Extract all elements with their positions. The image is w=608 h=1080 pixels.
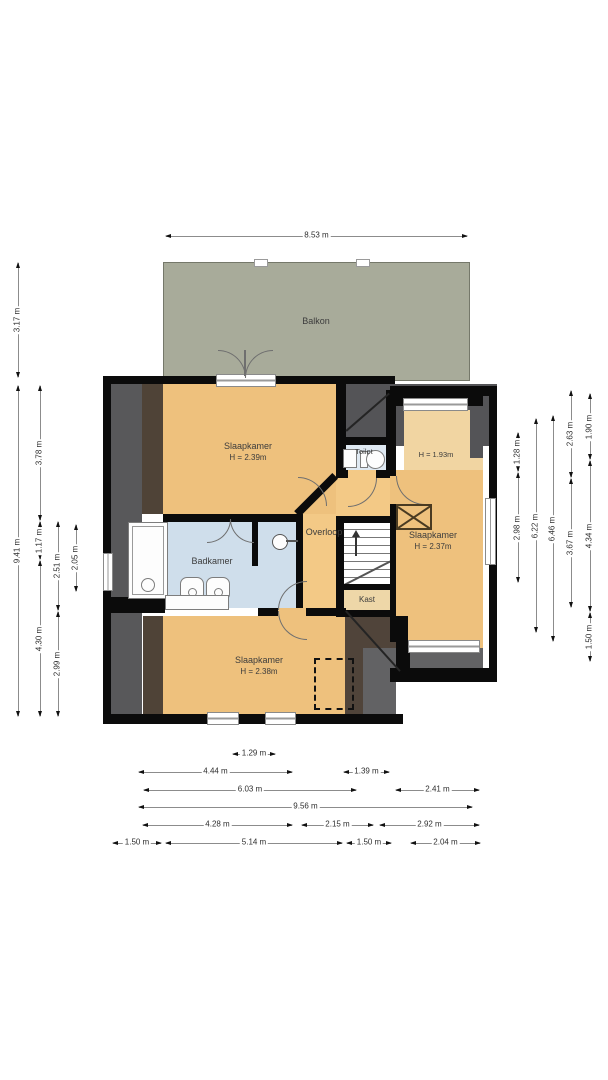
dimension-label: 3.67 m [567,529,576,557]
dimension: 6.22 m [531,418,541,633]
dimension: 2.92 m [379,820,480,830]
dimension: 2.98 m [513,472,523,583]
room-name: Overloop [284,527,364,539]
dimension-label: 4.28 m [203,821,231,830]
room-height: H = 2.38m [199,667,319,677]
dimension-label: 2.63 m [567,420,576,448]
floor-plan-page: Balkon Slaapkamer H = 2.39m Toilet H = 1… [0,0,608,1080]
dimension-label: 3.78 m [36,439,45,467]
wall-toilet-top [338,437,391,445]
dashed-zone-outline [314,658,354,710]
dimension-label: 2.92 m [415,821,443,830]
wall-toilet-right [386,390,396,478]
dimension: 6.03 m [143,785,357,795]
dimension: 1.17 m [35,521,45,560]
window-bottom-left [207,712,239,725]
dimension: 2.04 m [410,838,481,848]
wall-outer-bottom [103,714,403,724]
room-label-kast: Kast [344,595,390,605]
room-label-overloop: Overloop [284,527,364,539]
dimension-label: 9.56 m [291,803,319,812]
balcony-edge-tick [254,259,268,267]
dimension: 4.34 m [585,460,595,612]
dimension-label: 2.05 m [72,544,81,572]
dimension-label: 6.03 m [236,786,264,795]
floor-slope-brown-left-top [142,384,163,514]
floor-slope-strip [470,410,483,458]
dimension: 8.53 m [165,231,468,241]
wall-bath-left-chunk [103,597,165,613]
dimension-label: 1.39 m [352,768,380,777]
dimension-label: 1.28 m [514,438,523,466]
dimension-label: 5.14 m [240,839,268,848]
dimension-label: 6.22 m [532,511,541,539]
dimension-label: 1.29 m [240,750,268,759]
dimension: 3.67 m [566,478,576,608]
dimension-label: 2.98 m [514,513,523,541]
window-top-right [403,398,468,411]
dimension: 6.46 m [548,415,558,642]
dimension: 1.29 m [232,749,276,759]
dimension-label: 3.17 m [14,306,23,334]
window-bedroom-right-bottom [408,640,480,653]
dimension: 3.17 m [13,262,23,378]
dimension-label: 1.17 m [36,526,45,554]
dimension-label: 2.51 m [54,552,63,580]
room-name: Slaapkamer [188,441,308,453]
door-opening [390,476,396,504]
dimension-label: 2.99 m [54,650,63,678]
balcony-edge-tick [356,259,370,267]
dimension: 2.15 m [301,820,374,830]
balcony-door-center [244,350,246,376]
floor-slope-brown-left-bottom [143,616,163,714]
bathroom-counter [165,595,229,610]
dimension: 2.99 m [53,611,63,717]
dimension-label: 8.53 m [302,232,330,241]
room-height: H = 2.37m [393,542,473,552]
room-label-toilet: Toilet [344,447,384,457]
room-name: Balkon [266,316,366,328]
window-bottom-right [265,712,296,725]
room-height: H = 1.93m [406,450,466,460]
roof-window-symbol [396,504,432,530]
dimension: 2.41 m [395,785,480,795]
dimension: 5.14 m [165,838,343,848]
dimension: 1.28 m [513,432,523,472]
room-label-balkon: Balkon [266,316,366,328]
dimension: 1.50 m [585,612,595,662]
dimension: 4.44 m [138,767,293,777]
dimension-label: 4.44 m [201,768,229,777]
room-name: Slaapkamer [393,530,473,542]
room-name: Slaapkamer [199,655,319,667]
dimension: 4.30 m [35,560,45,717]
window-left [103,553,113,591]
room-label-slaapkamer-right: Slaapkamer H = 2.37m [393,530,473,552]
wall-stairs-top [336,516,396,523]
dimension: 1.90 m [585,393,595,460]
dimension-label: 2.04 m [431,839,459,848]
dimension-label: 4.34 m [586,522,595,550]
room-height: H = 2.39m [188,453,308,463]
light-point-line [286,540,298,542]
room-label-slaapkamer-bottom: Slaapkamer H = 2.38m [199,655,319,677]
room-name: Toilet [344,447,384,457]
dimension-label: 4.30 m [36,624,45,652]
dimension: 1.50 m [112,838,162,848]
window-right [485,498,496,565]
dimension-label: 1.90 m [586,412,595,440]
room-label-badkamer: Badkamer [162,556,262,568]
room-label-low-ceiling: H = 1.93m [406,450,466,460]
wall-outer-left [103,376,111,722]
dimension: 3.78 m [35,385,45,521]
dimension: 1.50 m [346,838,392,848]
dimension-label: 9.41 m [14,537,23,565]
dimension-label: 1.50 m [123,839,151,848]
wall-kast-top [336,584,396,590]
dimension: 4.28 m [142,820,293,830]
room-label-slaapkamer-top: Slaapkamer H = 2.39m [188,441,308,463]
door-opening [348,470,376,478]
room-name: Badkamer [162,556,262,568]
dimension: 2.63 m [566,390,576,478]
room-name: Kast [344,595,390,605]
stairs-up-arrow-stem [355,536,357,556]
dimension-label: 6.46 m [549,514,558,542]
dimension: 1.39 m [343,767,390,777]
dimension: 9.41 m [13,385,23,717]
dimension-label: 1.50 m [586,623,595,651]
shower-drain [141,578,155,592]
dimension-label: 2.41 m [423,786,451,795]
dimension-label: 2.15 m [323,821,351,830]
dimension: 2.05 m [71,524,81,592]
dimension: 9.56 m [138,802,473,812]
wall-corner-piece [390,616,408,642]
dimension: 2.51 m [53,521,63,611]
dimension-label: 1.50 m [355,839,383,848]
